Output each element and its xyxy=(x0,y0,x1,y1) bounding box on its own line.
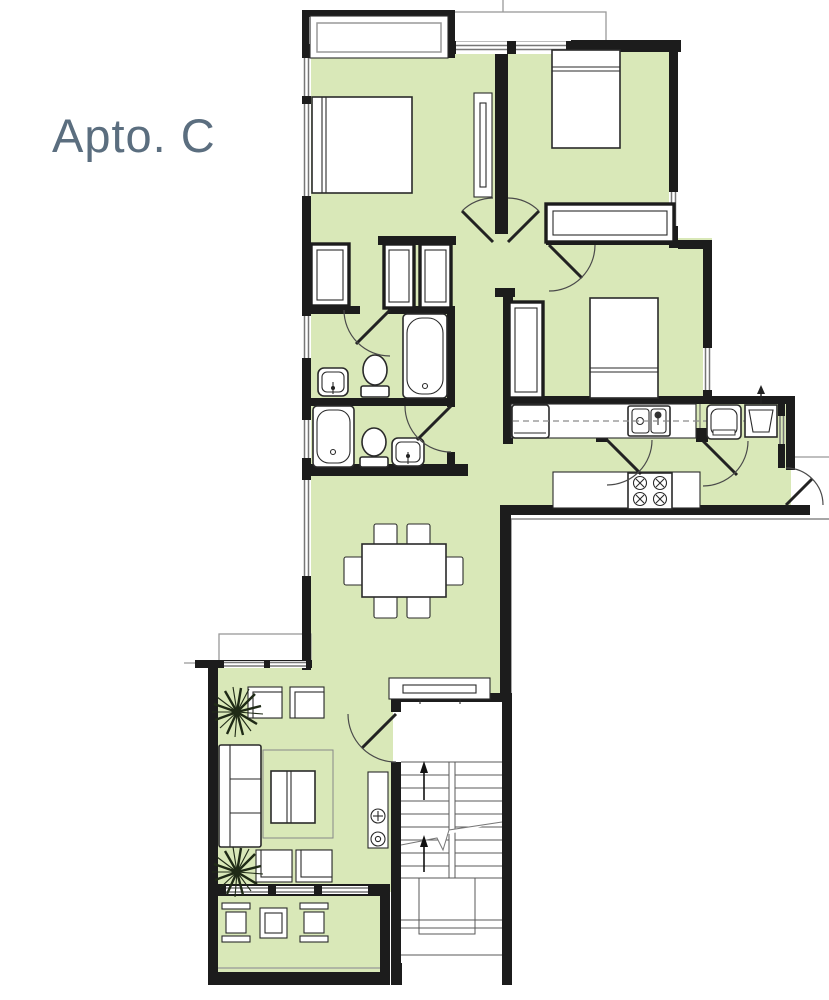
bedroom-1-windows xyxy=(302,58,311,196)
terrace xyxy=(222,903,328,942)
armchair xyxy=(256,850,292,882)
sink xyxy=(318,368,348,396)
double-bed xyxy=(312,97,412,193)
stove-icon xyxy=(628,473,672,509)
dining-chair xyxy=(344,557,364,585)
stair-landing xyxy=(419,878,475,934)
wardrobe xyxy=(509,302,543,398)
spine-wall xyxy=(495,44,508,234)
terrace-chair xyxy=(222,903,250,942)
coffee-table xyxy=(271,771,315,823)
kitchen-lower-counter xyxy=(553,472,700,508)
bathtub xyxy=(403,314,447,398)
dining-chair xyxy=(374,595,397,618)
balcony-ledge xyxy=(448,12,606,42)
toilet xyxy=(360,428,388,467)
dining-chair xyxy=(407,595,430,618)
double-bed xyxy=(590,298,658,398)
floor-plan-drawing xyxy=(0,0,829,1000)
stair-divider xyxy=(449,762,455,878)
terrace-chair xyxy=(300,903,328,942)
service-balcony-door xyxy=(786,468,823,505)
living-window-band xyxy=(218,660,312,668)
terrace-table xyxy=(260,908,287,938)
dining-table xyxy=(362,544,446,597)
armchair xyxy=(290,687,324,718)
dining-window xyxy=(302,480,311,576)
meter-panel xyxy=(368,772,388,848)
stair-direction-arrow xyxy=(420,761,428,872)
wardrobe xyxy=(546,204,674,242)
wardrobe-panel xyxy=(474,93,492,197)
neighbor-outline xyxy=(511,519,829,693)
washing-machine-icon xyxy=(707,405,741,439)
sink xyxy=(392,438,424,466)
bathtub xyxy=(313,406,354,467)
sofa xyxy=(219,745,261,847)
staircase xyxy=(401,761,502,955)
toilet xyxy=(361,355,389,397)
double-bed xyxy=(552,50,620,148)
floor-plan-page: Apto. C xyxy=(0,0,829,1000)
laundry-sink-icon xyxy=(745,385,777,437)
living-ledge xyxy=(219,634,311,664)
armchair xyxy=(296,850,332,882)
bedroom-3-window xyxy=(703,348,712,390)
